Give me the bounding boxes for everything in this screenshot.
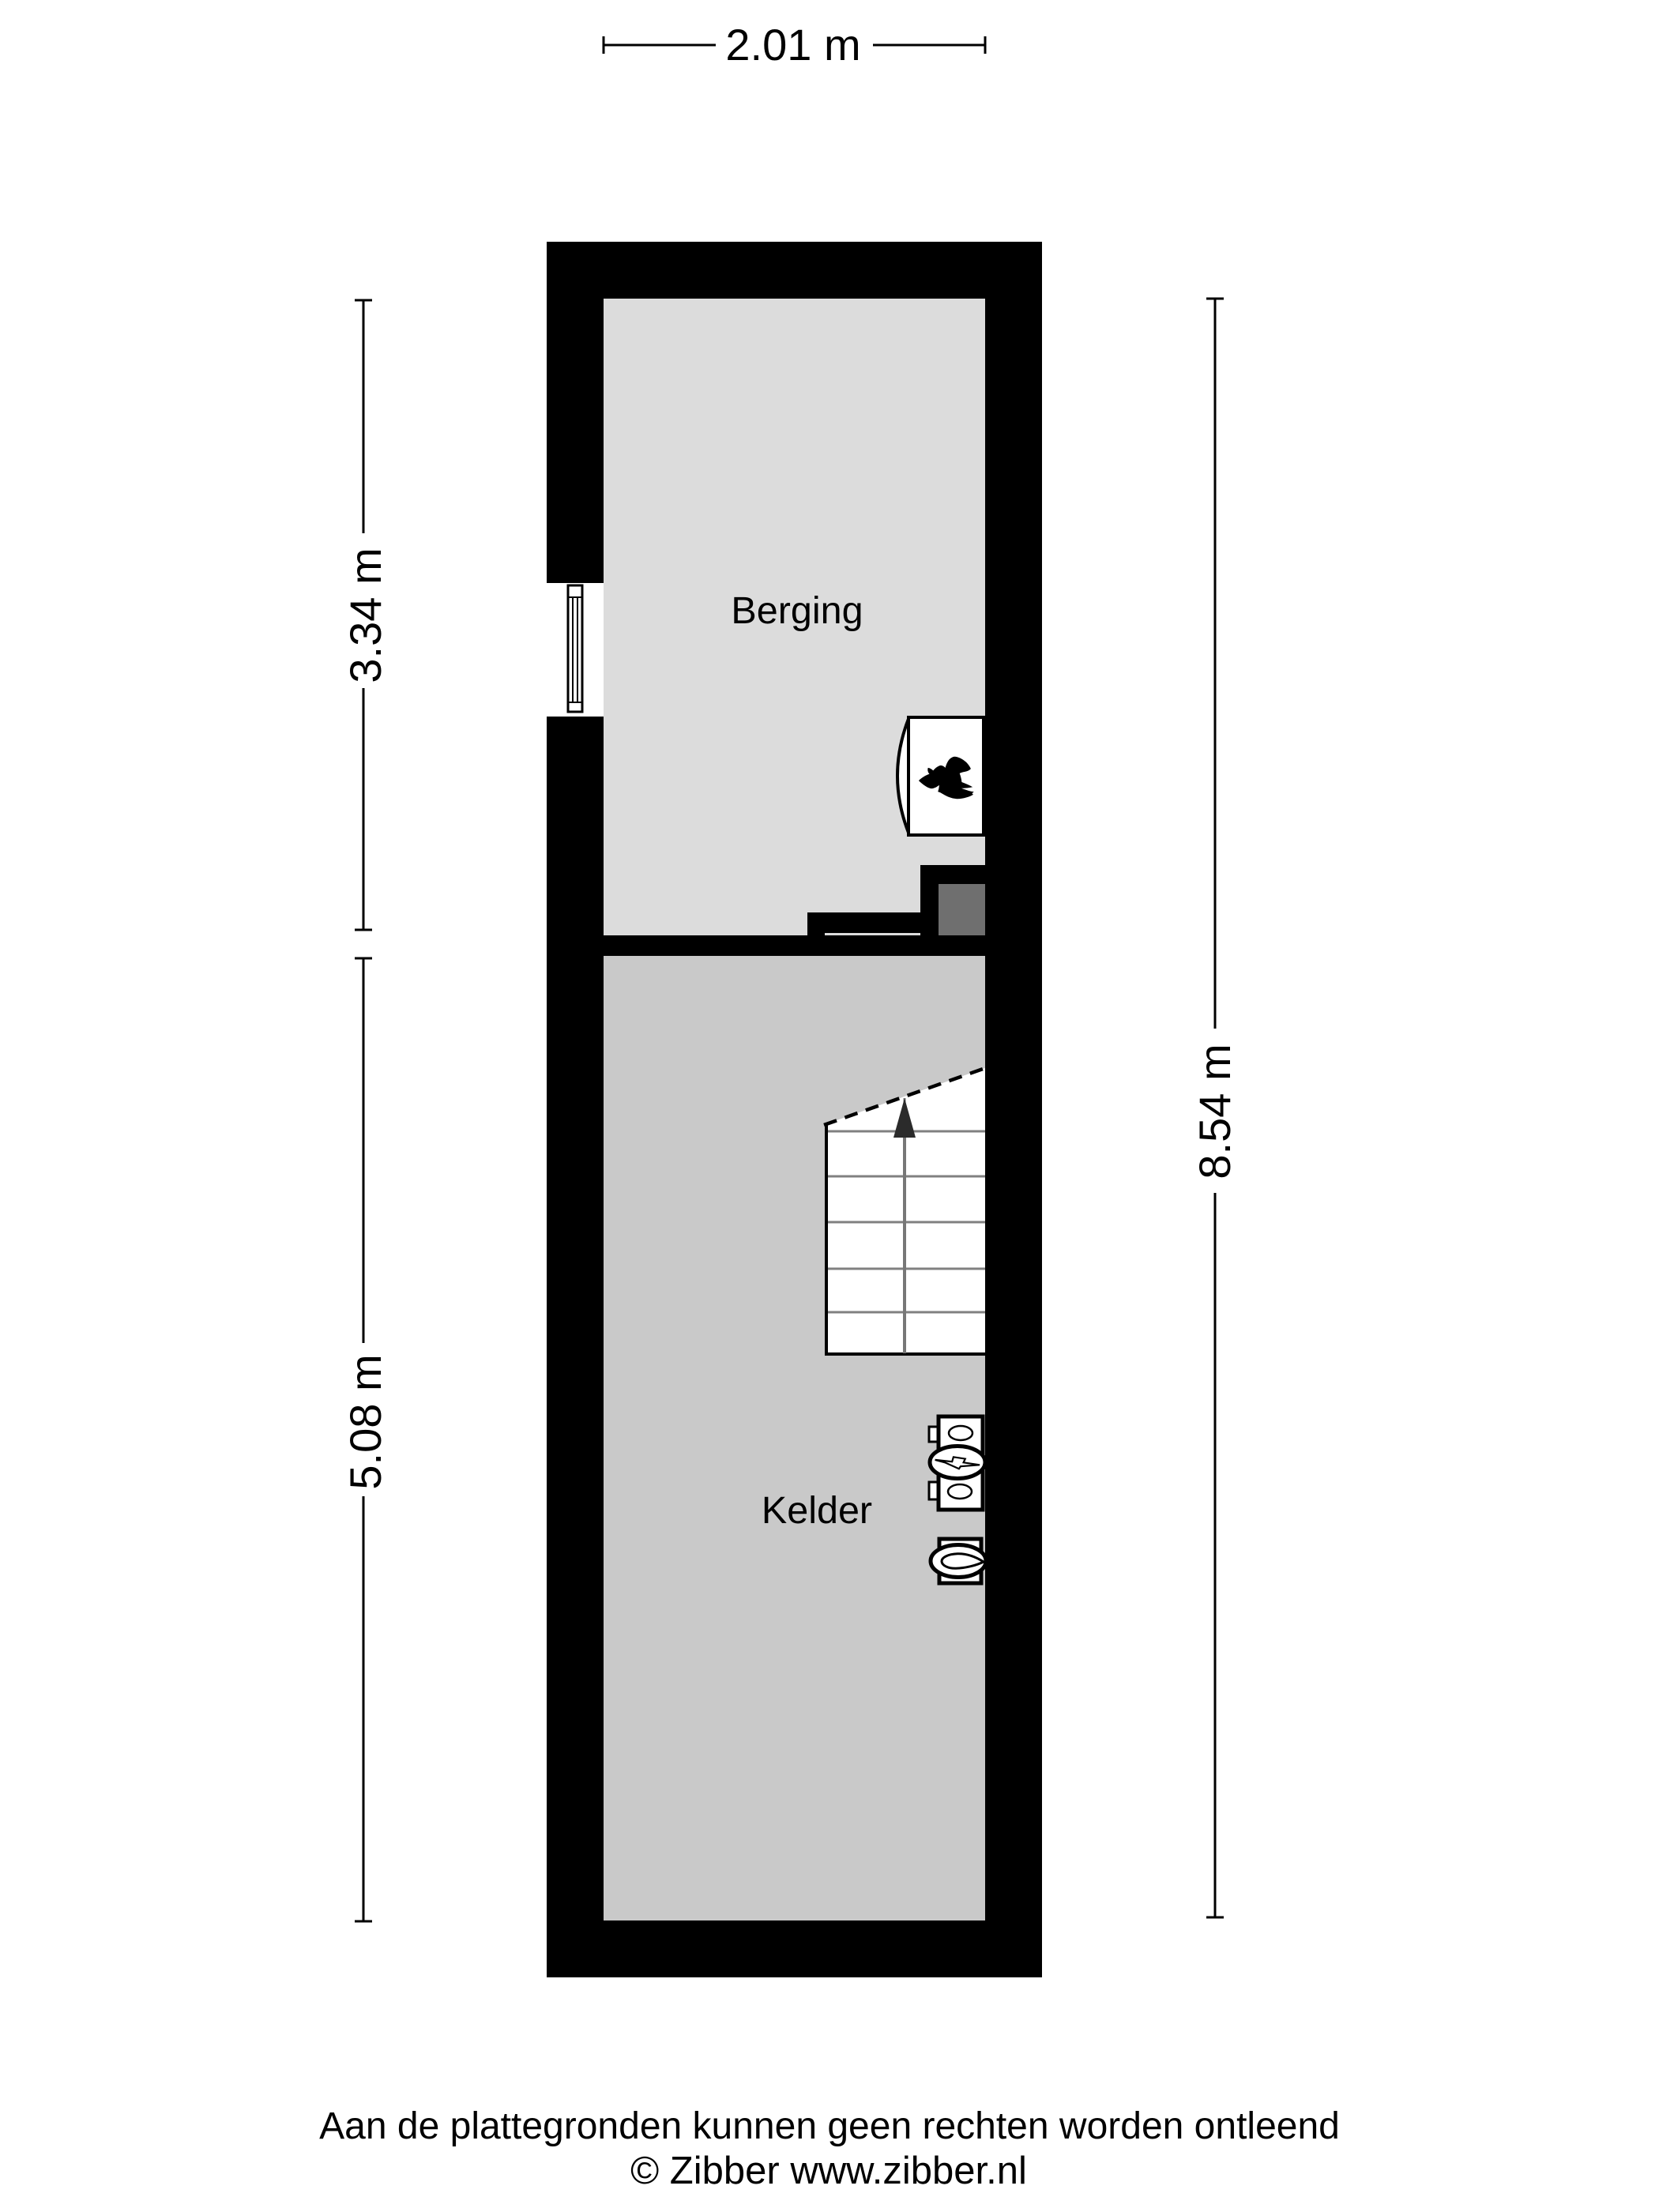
svg-text:Kelder: Kelder (762, 1489, 872, 1532)
svg-text:2.01 m: 2.01 m (725, 20, 860, 70)
svg-text:© Zibber www.zibber.nl: © Zibber www.zibber.nl (630, 2150, 1027, 2192)
svg-text:Berging: Berging (731, 589, 863, 632)
svg-text:Aan de plattegronden kunnen ge: Aan de plattegronden kunnen geen rechten… (319, 2105, 1340, 2147)
svg-text:8.54 m: 8.54 m (1190, 1044, 1240, 1179)
svg-text:3.34 m: 3.34 m (340, 547, 390, 683)
svg-text:5.08 m: 5.08 m (340, 1354, 390, 1489)
